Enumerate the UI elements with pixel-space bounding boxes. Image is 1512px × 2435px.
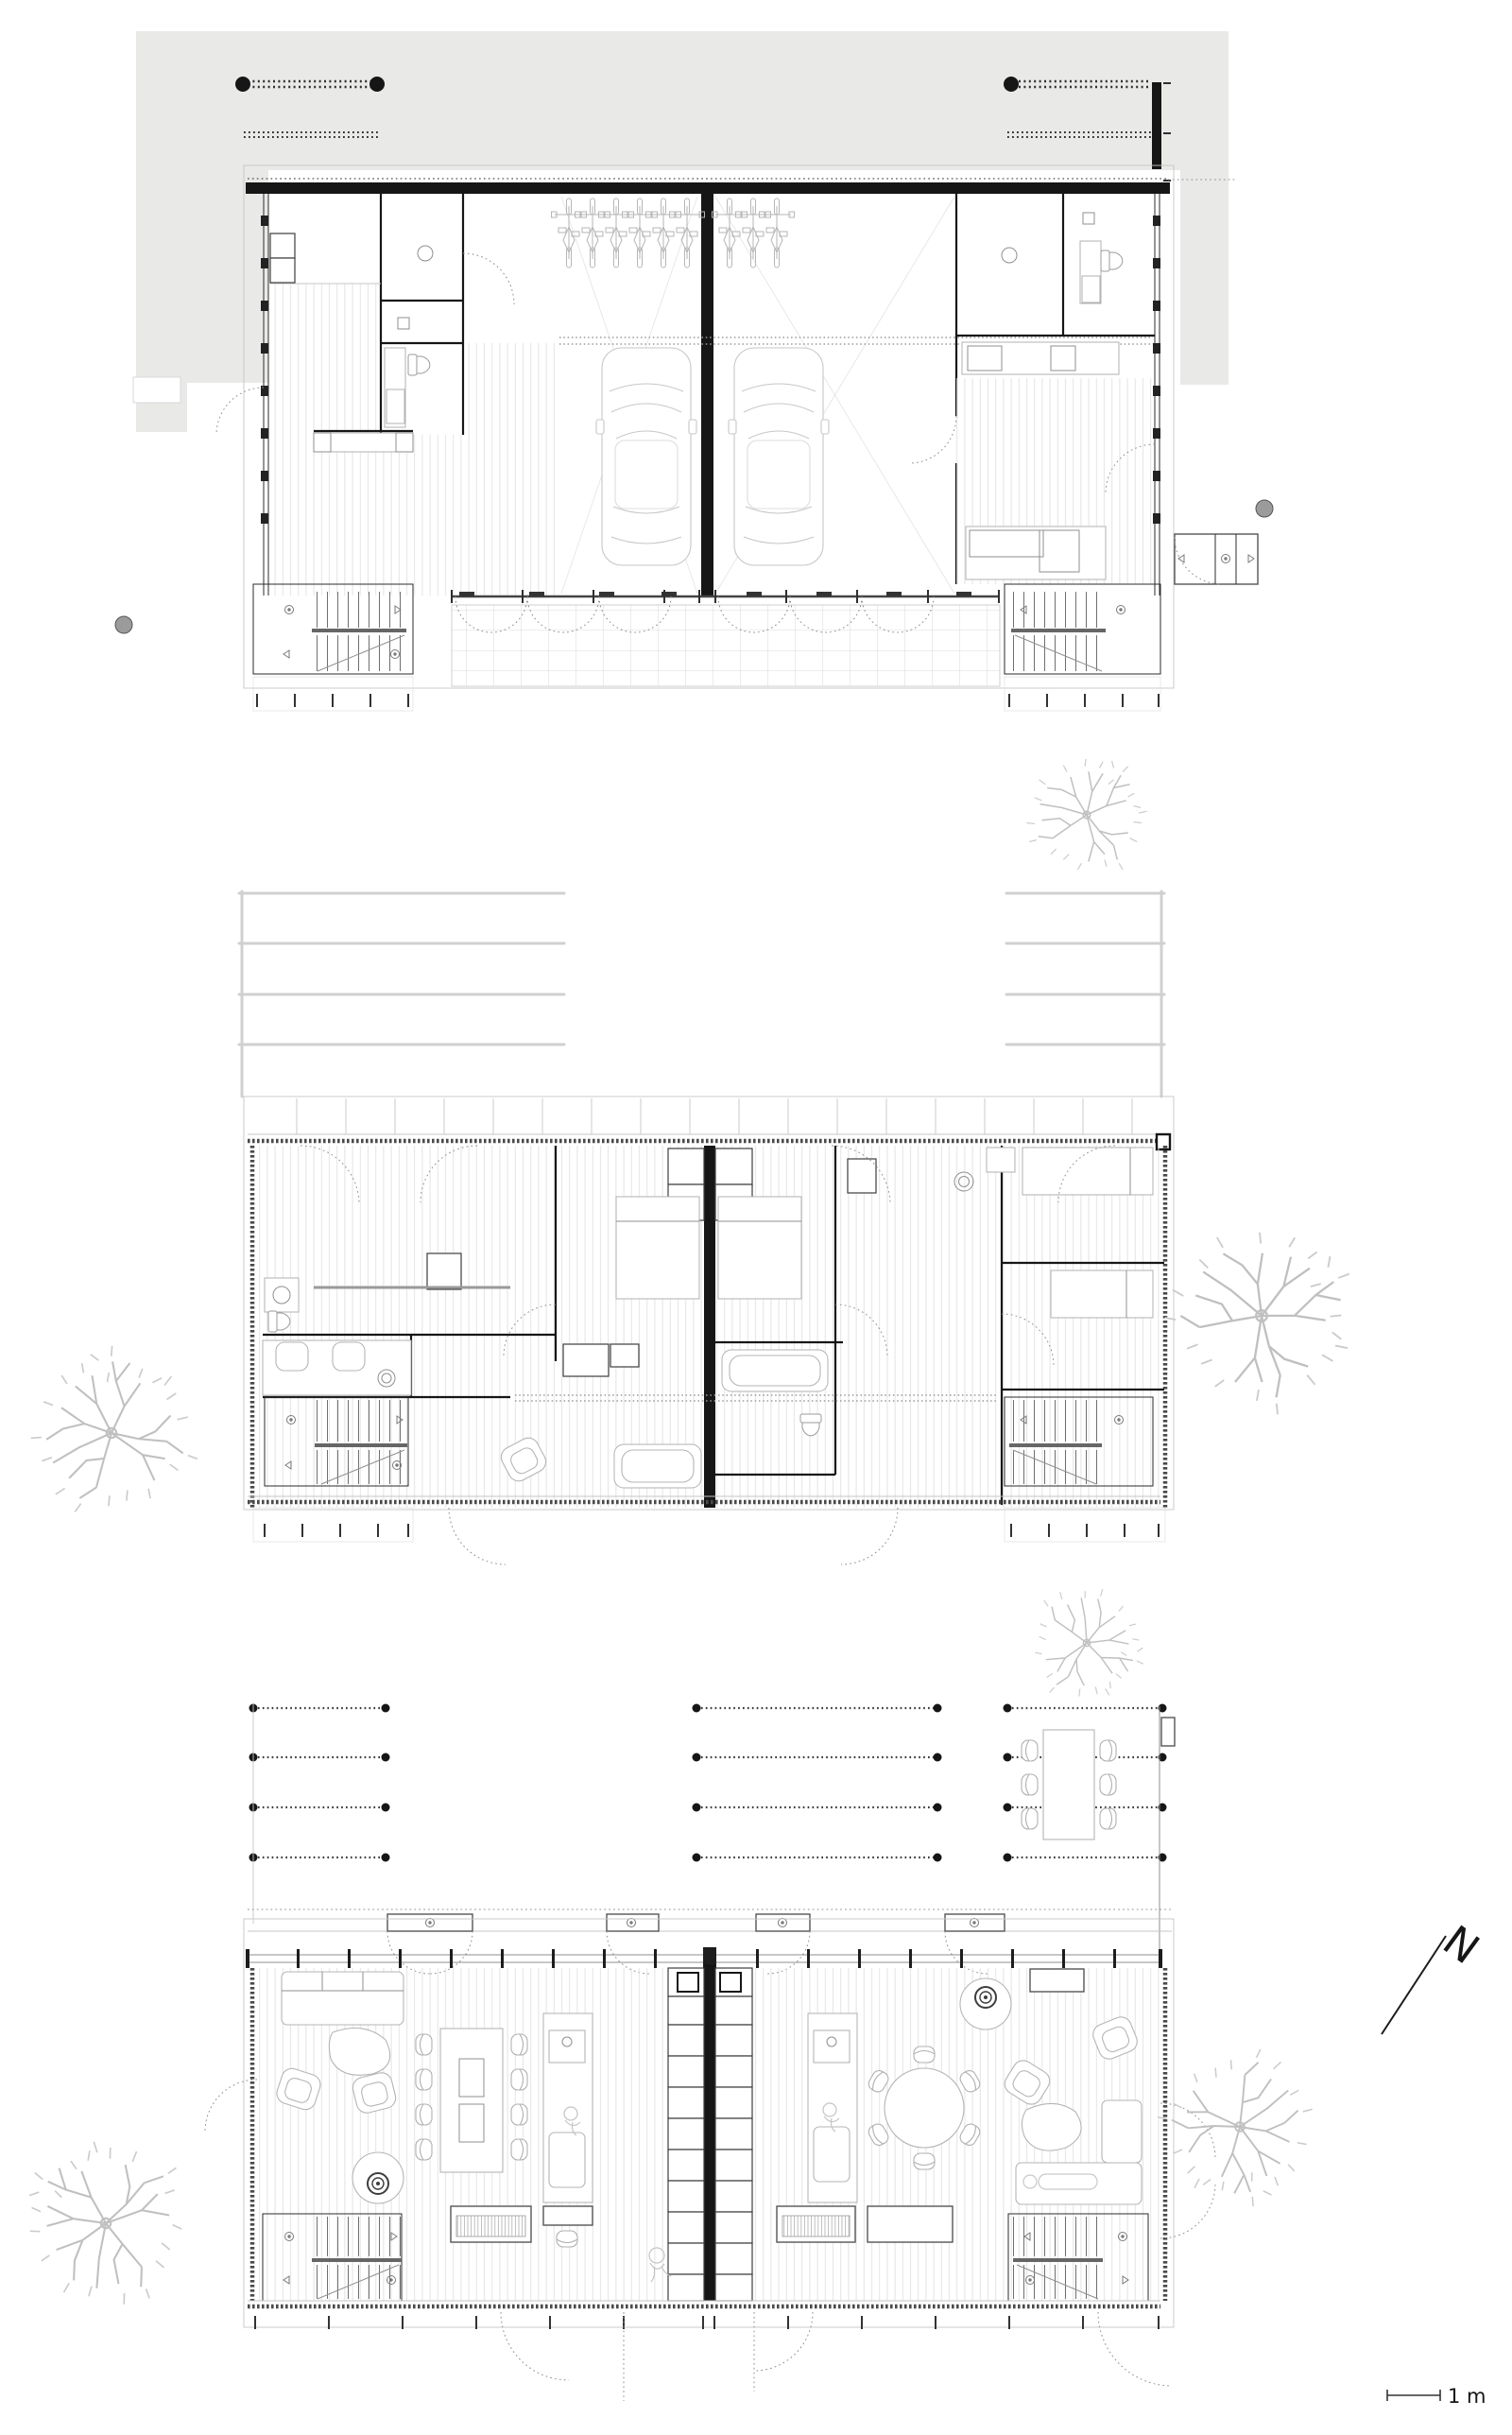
tree (1026, 759, 1146, 870)
bollard (1256, 500, 1273, 517)
coffee-table (1022, 2103, 1081, 2150)
bench (777, 2206, 855, 2242)
north-arrow: N (1382, 1917, 1487, 2034)
scale-bar: 1 m (1387, 2385, 1486, 2408)
bench (868, 2206, 953, 2242)
outdoor-dining-table (1022, 1730, 1116, 1839)
bed (1051, 1270, 1153, 1318)
kitchen-island (543, 2013, 593, 2202)
bed (718, 1197, 801, 1299)
bench (1030, 1969, 1084, 1992)
kitchen-island (808, 2013, 857, 2202)
scale-label: 1 m (1448, 2385, 1486, 2408)
stairwell (1005, 584, 1160, 674)
tree (1019, 1571, 1156, 1714)
garden-wall-cap (1161, 1718, 1175, 1746)
entry-vestibule (607, 1914, 659, 1974)
gate-post (1152, 82, 1161, 169)
tree (1138, 2024, 1342, 2230)
entry-vestibule (945, 1914, 1005, 1974)
bed (616, 1197, 699, 1299)
paved-court (452, 605, 1000, 686)
stairwell (253, 584, 413, 674)
entry-vestibule (756, 1914, 810, 1974)
car (596, 348, 696, 565)
living-level-plan (205, 1704, 1215, 2402)
entry-porch (1175, 534, 1258, 584)
tree (0, 1321, 223, 1543)
car (729, 348, 829, 565)
bollard (115, 616, 132, 633)
floor-plan-drawing: N 1 m (0, 0, 1512, 2435)
north-letter: N (1435, 1917, 1488, 1975)
drawing-sheet: N 1 m (0, 0, 1512, 2435)
bedroom-level-plan (239, 891, 1174, 1564)
bench (451, 2206, 531, 2242)
trellis (239, 891, 1164, 1097)
garage-level-plan (115, 31, 1273, 711)
sofa (282, 1972, 404, 2025)
tree (23, 2134, 187, 2311)
tree (1143, 1200, 1380, 1429)
